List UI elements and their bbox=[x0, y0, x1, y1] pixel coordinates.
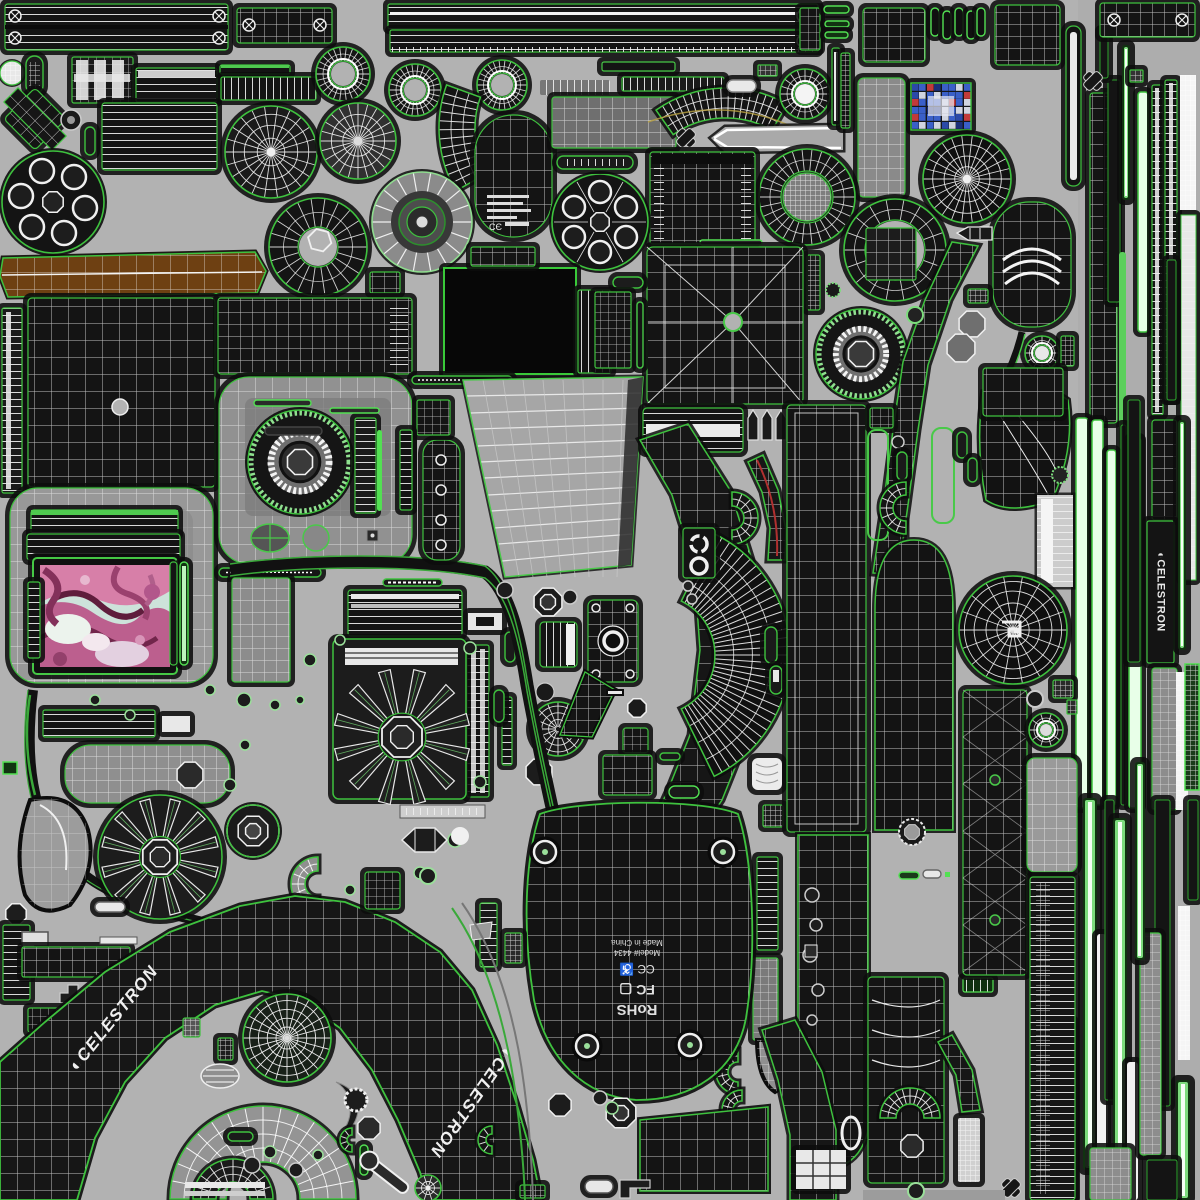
svg-text:◐CELESTRON: ◐CELESTRON bbox=[1155, 552, 1167, 631]
svg-text:RoHS: RoHS bbox=[617, 1001, 658, 1018]
svg-text:Model# 4434: Model# 4434 bbox=[613, 948, 660, 957]
svg-text:CЄ: CЄ bbox=[489, 222, 502, 232]
svg-text:Made in China: Made in China bbox=[611, 938, 663, 947]
svg-text:FC ▢: FC ▢ bbox=[619, 982, 655, 998]
svg-text:CЄ ♿: CЄ ♿ bbox=[619, 962, 655, 976]
